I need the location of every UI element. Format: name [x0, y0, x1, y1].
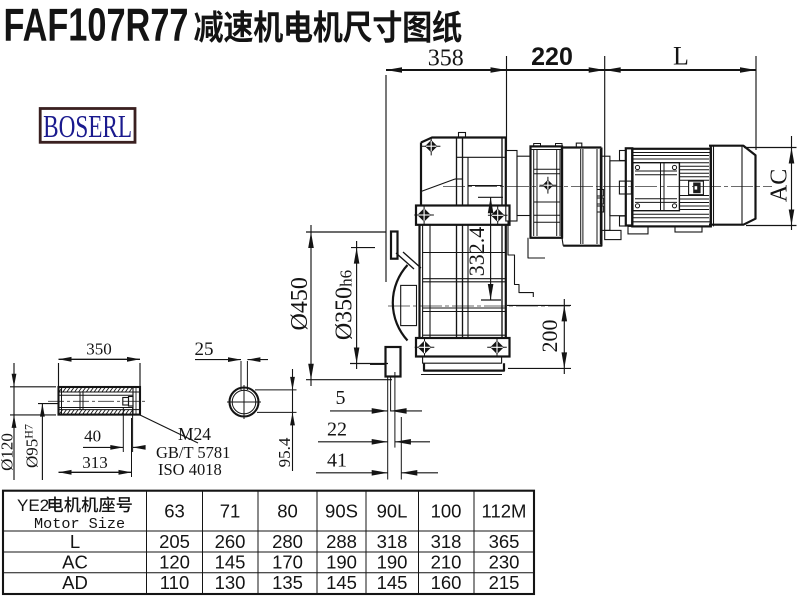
svg-text:135: 135 — [272, 572, 303, 593]
svg-text:63: 63 — [164, 501, 185, 522]
svg-text:332.4: 332.4 — [464, 227, 489, 277]
svg-text:280: 280 — [272, 531, 303, 552]
svg-text:FAF107R77: FAF107R77 — [4, 0, 189, 51]
svg-text:318: 318 — [377, 531, 408, 552]
svg-text:313: 313 — [82, 453, 108, 472]
svg-text:288: 288 — [326, 531, 357, 552]
svg-text:200: 200 — [537, 320, 562, 353]
svg-text:80: 80 — [277, 501, 298, 522]
svg-text:40: 40 — [84, 427, 101, 446]
svg-text:170: 170 — [272, 552, 303, 573]
svg-text:130: 130 — [215, 572, 246, 593]
svg-text:350: 350 — [86, 340, 112, 359]
svg-text:215: 215 — [489, 572, 520, 593]
svg-text:260: 260 — [215, 531, 246, 552]
svg-text:22: 22 — [327, 419, 347, 441]
svg-text:25: 25 — [195, 339, 214, 360]
svg-text:190: 190 — [377, 552, 408, 573]
svg-text:M24: M24 — [178, 424, 211, 444]
svg-text:145: 145 — [326, 572, 357, 593]
svg-text:90S: 90S — [325, 501, 358, 522]
svg-text:Ø120: Ø120 — [0, 433, 17, 471]
svg-text:YE2: YE2 — [17, 496, 49, 515]
svg-text:ISO 4018: ISO 4018 — [158, 460, 222, 479]
svg-text:190: 190 — [326, 552, 357, 573]
svg-text:365: 365 — [489, 531, 520, 552]
svg-text:145: 145 — [377, 572, 408, 593]
svg-text:41: 41 — [327, 450, 347, 472]
svg-text:112M: 112M — [482, 501, 527, 522]
svg-text:L: L — [70, 531, 80, 552]
svg-text:110: 110 — [160, 572, 190, 593]
svg-text:120: 120 — [159, 552, 190, 573]
svg-text:358: 358 — [428, 45, 464, 71]
svg-text:160: 160 — [431, 572, 462, 593]
svg-text:230: 230 — [489, 552, 520, 573]
svg-text:145: 145 — [215, 552, 246, 573]
svg-text:95.4: 95.4 — [275, 437, 294, 467]
svg-text:BOSERL: BOSERL — [43, 108, 132, 144]
svg-text:71: 71 — [220, 501, 241, 522]
svg-text:90L: 90L — [377, 501, 408, 522]
svg-text:L: L — [673, 42, 689, 71]
svg-text:100: 100 — [431, 501, 462, 522]
svg-text:AC: AC — [767, 169, 793, 202]
svg-text:205: 205 — [159, 531, 190, 552]
svg-text:Ø450: Ø450 — [287, 277, 313, 330]
svg-text:AC: AC — [62, 552, 88, 573]
svg-text:5: 5 — [336, 387, 346, 409]
svg-text:318: 318 — [431, 531, 462, 552]
svg-text:210: 210 — [431, 552, 462, 573]
svg-text:AD: AD — [62, 572, 88, 593]
svg-text:220: 220 — [531, 43, 573, 71]
